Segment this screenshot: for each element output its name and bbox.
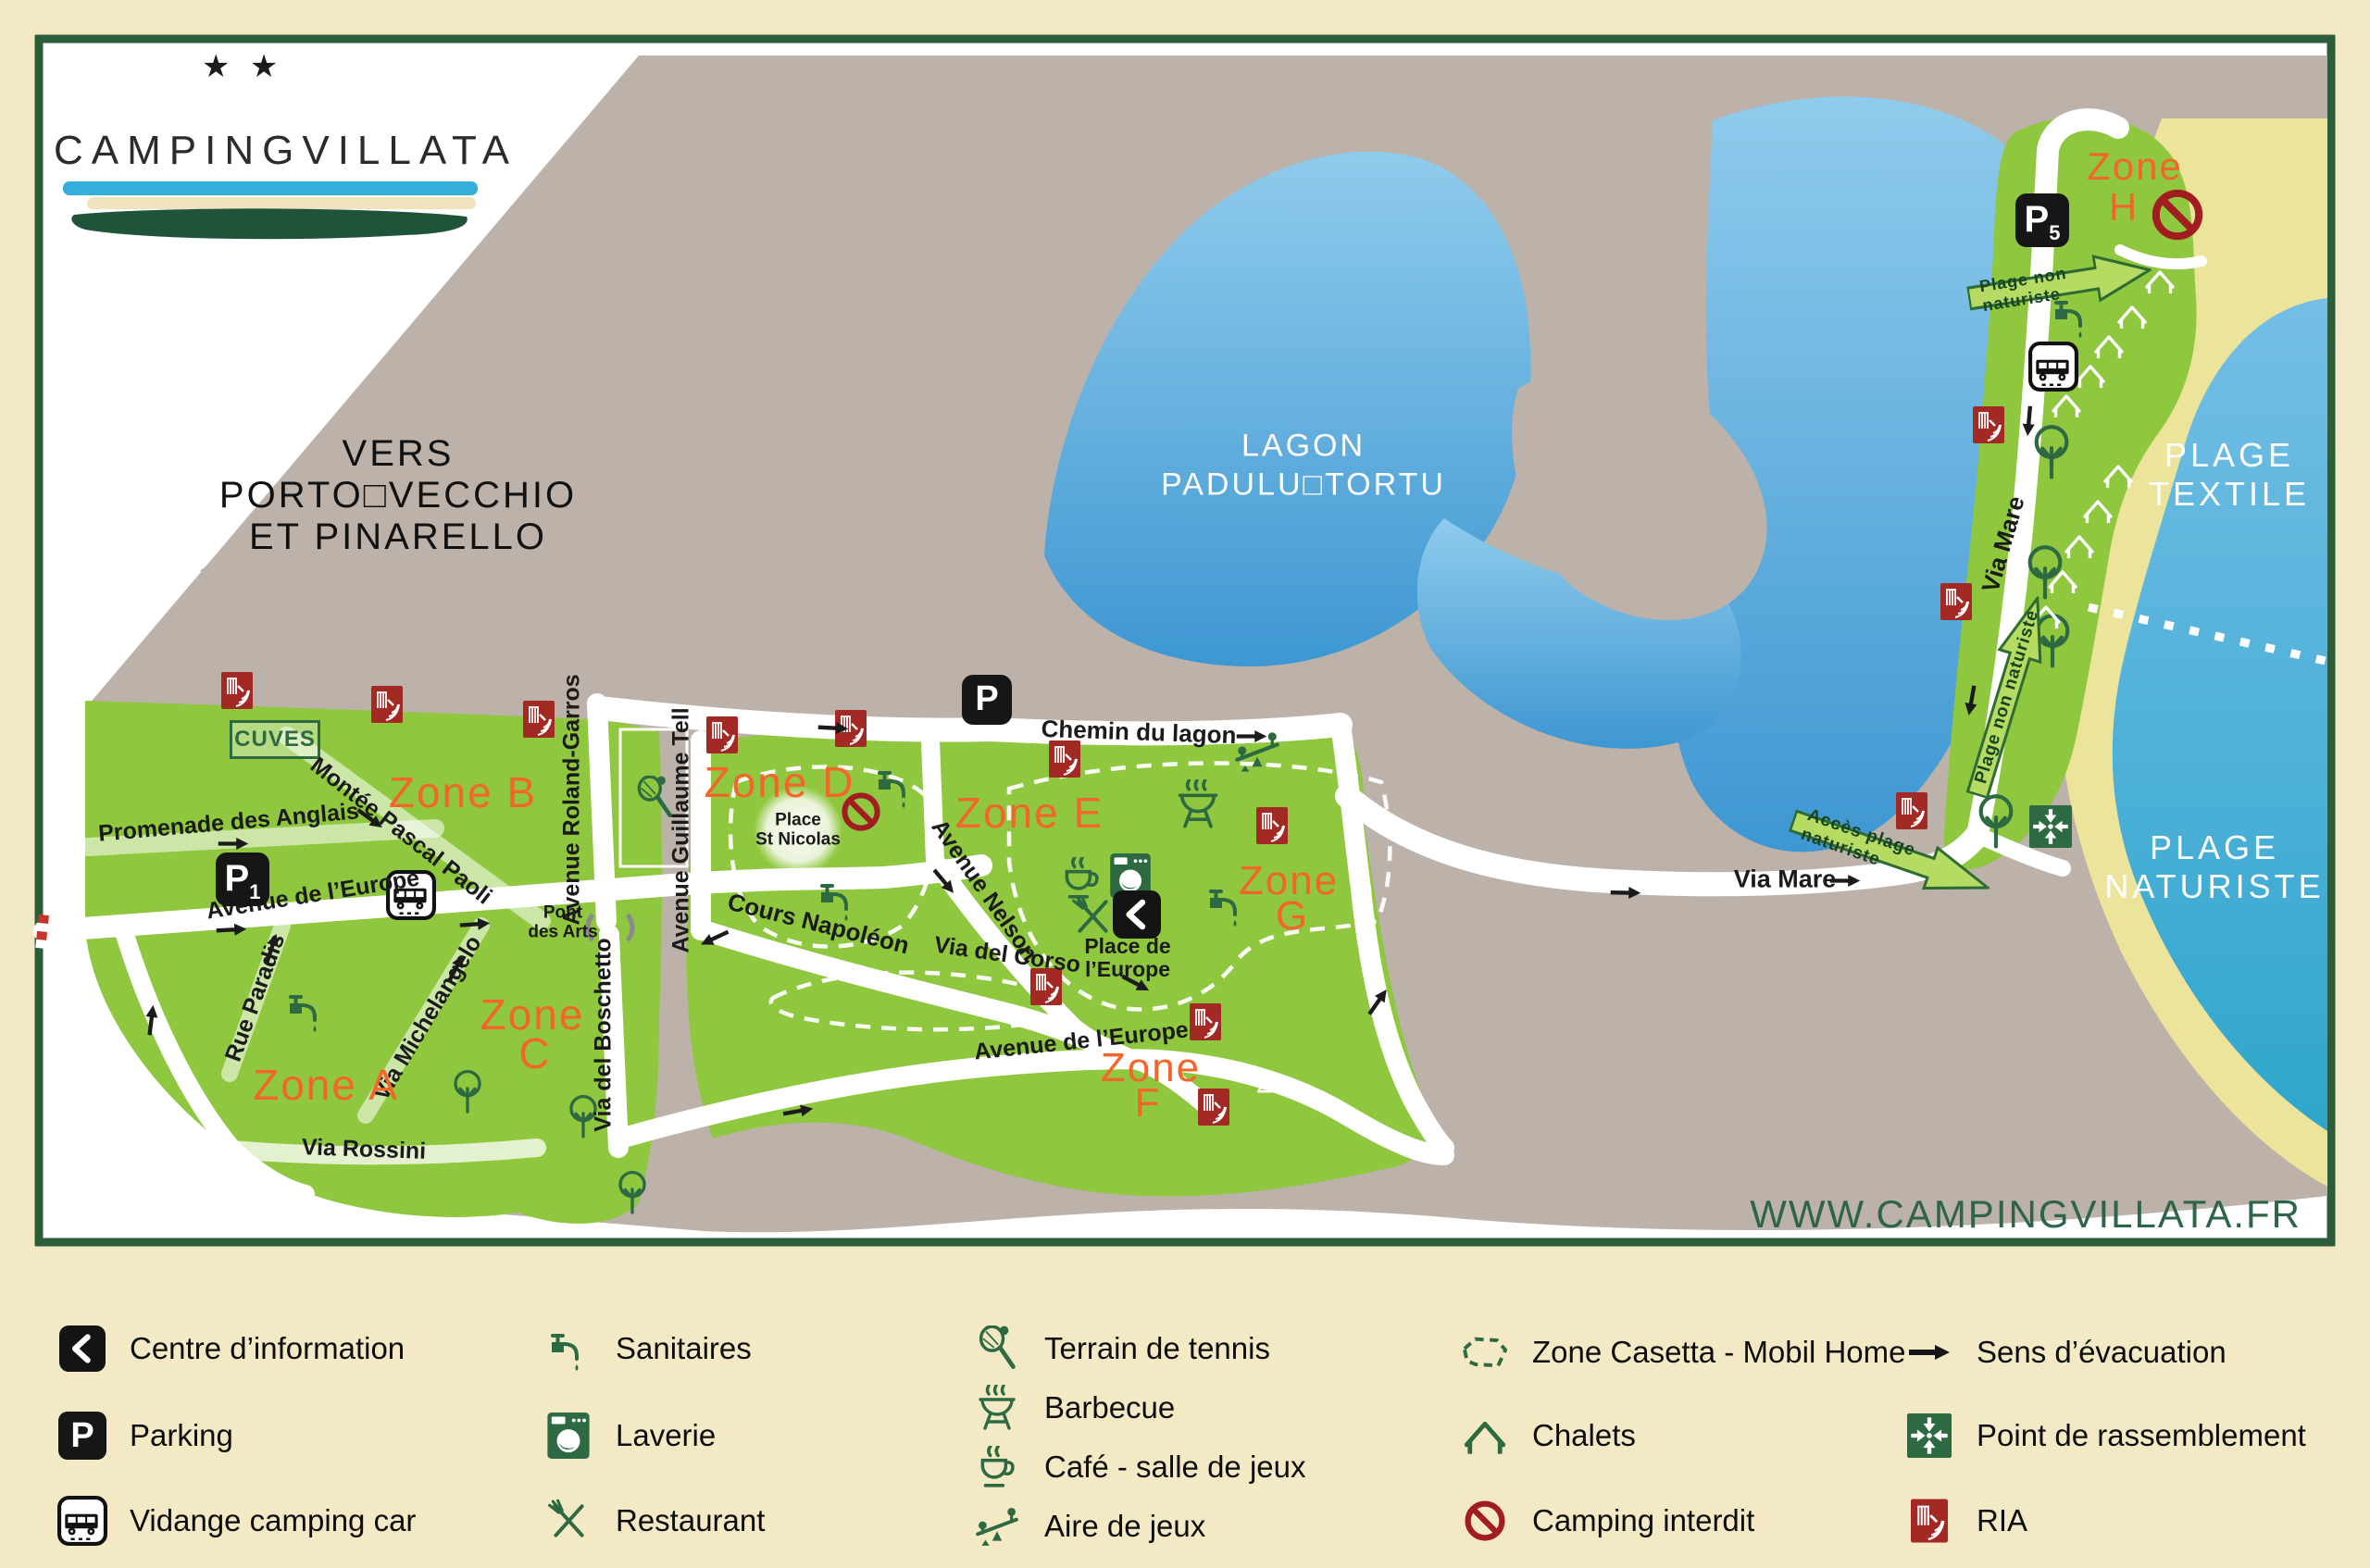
fire-hose-icon — [1049, 740, 1080, 778]
zone-label-h2: H — [2109, 185, 2139, 230]
zone-label-e: Zone E — [955, 788, 1104, 838]
parking-lagon: P — [962, 675, 1012, 725]
parking-p1: P1 — [216, 852, 269, 906]
casetta-zone-icon — [1458, 1325, 1512, 1379]
lagoon-label-2: PADULU□TORTU — [1161, 467, 1446, 504]
lagoon-label: LAGON — [1241, 429, 1366, 465]
fire-hose-icon — [706, 716, 738, 753]
tap-icon — [542, 1322, 595, 1375]
fire-hose-icon — [1973, 406, 2004, 443]
street-label-via-mare: Via Mare — [1734, 865, 1837, 894]
legend-item-laverie: Laverie — [542, 1409, 716, 1462]
legend-item-vidange: Vidange camping car — [56, 1494, 416, 1548]
assembly-point-icon — [1902, 1409, 1956, 1462]
barbecue-icon — [970, 1381, 1024, 1435]
zone-label-c2: C — [518, 1028, 551, 1078]
restaurant-icon — [542, 1494, 595, 1548]
beach-naturiste-label: PLAGE — [2150, 828, 2279, 867]
logo-brush-strokes — [54, 180, 489, 254]
legend-item-sanitaires: Sanitaires — [542, 1322, 752, 1375]
place-label-pont-des-arts: Pontdes Arts — [528, 903, 597, 941]
zone-f-number: 2 — [1256, 1065, 1274, 1101]
legend-item-tennis: Terrain de tennis — [970, 1322, 1270, 1375]
legend-item-cafe: Café - salle de jeux — [970, 1440, 1305, 1494]
legend-item-aire-de-jeux: Aire de jeux — [970, 1500, 1205, 1553]
legend-item-parking: P Parking — [56, 1409, 233, 1462]
legend-item-chalets: Chalets — [1458, 1409, 1636, 1462]
logo-text-camping: CAMPING — [54, 128, 302, 174]
beach-naturiste-label-2: NATURISTE — [2104, 867, 2324, 906]
fire-hose-icon — [523, 701, 555, 738]
zone-label-d: Zone D — [705, 757, 855, 807]
place-label-st-nicolas: PlaceSt Nicolas — [755, 811, 841, 849]
zone-label-b: Zone B — [389, 767, 537, 817]
street-label-guillaume-tell: Avenue Guillaume Tell — [668, 707, 695, 952]
logo-stars: ★ ★ — [202, 48, 283, 85]
street-label-boschetto: Via del Boschetto — [591, 938, 617, 1131]
cuves-label: CUVES — [230, 720, 320, 759]
assembly-point-icon — [2029, 805, 2072, 848]
fire-hose-icon — [1896, 792, 1927, 829]
zone-label-f2: F — [1135, 1080, 1162, 1126]
information-icon — [56, 1322, 109, 1375]
camper-drain-icon — [2030, 343, 2077, 390]
legend-item-restaurant: Restaurant — [542, 1494, 765, 1548]
place-label-europe: Place del’Europe — [1084, 935, 1170, 981]
fire-hose-icon — [1940, 583, 1972, 620]
legend-item-information: Centre d’information — [56, 1322, 405, 1375]
street-label-rossini: Via Rossini — [301, 1134, 426, 1165]
cafe-icon — [970, 1440, 1024, 1494]
tennis-icon — [970, 1322, 1024, 1375]
parking-p5: P5 — [2015, 193, 2069, 247]
zone-label-h: Zone — [2087, 144, 2183, 189]
playground-icon — [970, 1500, 1024, 1553]
no-camping-icon — [1458, 1494, 1512, 1548]
legend-item-barbecue: Barbecue — [970, 1381, 1175, 1435]
fire-hose-icon — [1190, 1003, 1221, 1040]
zone-label-a: Zone A — [253, 1060, 399, 1110]
legend-item-camping-interdit: Camping interdit — [1458, 1494, 1754, 1548]
legend-item-evacuation: Sens d’évacuation — [1902, 1325, 2227, 1379]
evacuation-arrow-icon — [1902, 1325, 1956, 1379]
website-url: WWW.CAMPINGVILLATA.FR — [1750, 1192, 2301, 1237]
street-label-roland-garros: Avenue Roland-Garros — [559, 674, 586, 925]
legend-item-ria: RIA — [1902, 1494, 2027, 1548]
beach-textile-label-2: TEXTILE — [2149, 475, 2310, 514]
fire-hose-icon — [371, 686, 403, 723]
parking-icon: P — [56, 1409, 109, 1462]
camping-villata-map-page: ★ ★ CAMPING VILLATA VERS PORTO□VECCHIO E… — [0, 0, 2370, 1568]
direction-note: VERS PORTO□VECCHIO ET PINARELLO — [194, 433, 602, 558]
legend-item-rassemblement: Point de rassemblement — [1902, 1409, 2306, 1462]
camper-drain-icon — [56, 1494, 109, 1548]
fire-hose-icon — [1902, 1494, 1956, 1548]
information-icon — [1113, 890, 1161, 939]
legend-item-casetta: Zone Casetta - Mobil Home — [1458, 1325, 1906, 1379]
chalet-icon — [1458, 1409, 1512, 1462]
washing-machine-icon — [542, 1409, 595, 1462]
zone-label-g2: G — [1276, 893, 1309, 940]
logo-text-villata: VILLATA — [302, 128, 518, 174]
fire-hose-icon — [1198, 1089, 1229, 1126]
fire-hose-icon — [221, 672, 253, 709]
beach-textile-label: PLAGE — [2164, 436, 2294, 475]
road-roland-garros — [597, 703, 606, 921]
fire-hose-icon — [1256, 807, 1288, 844]
